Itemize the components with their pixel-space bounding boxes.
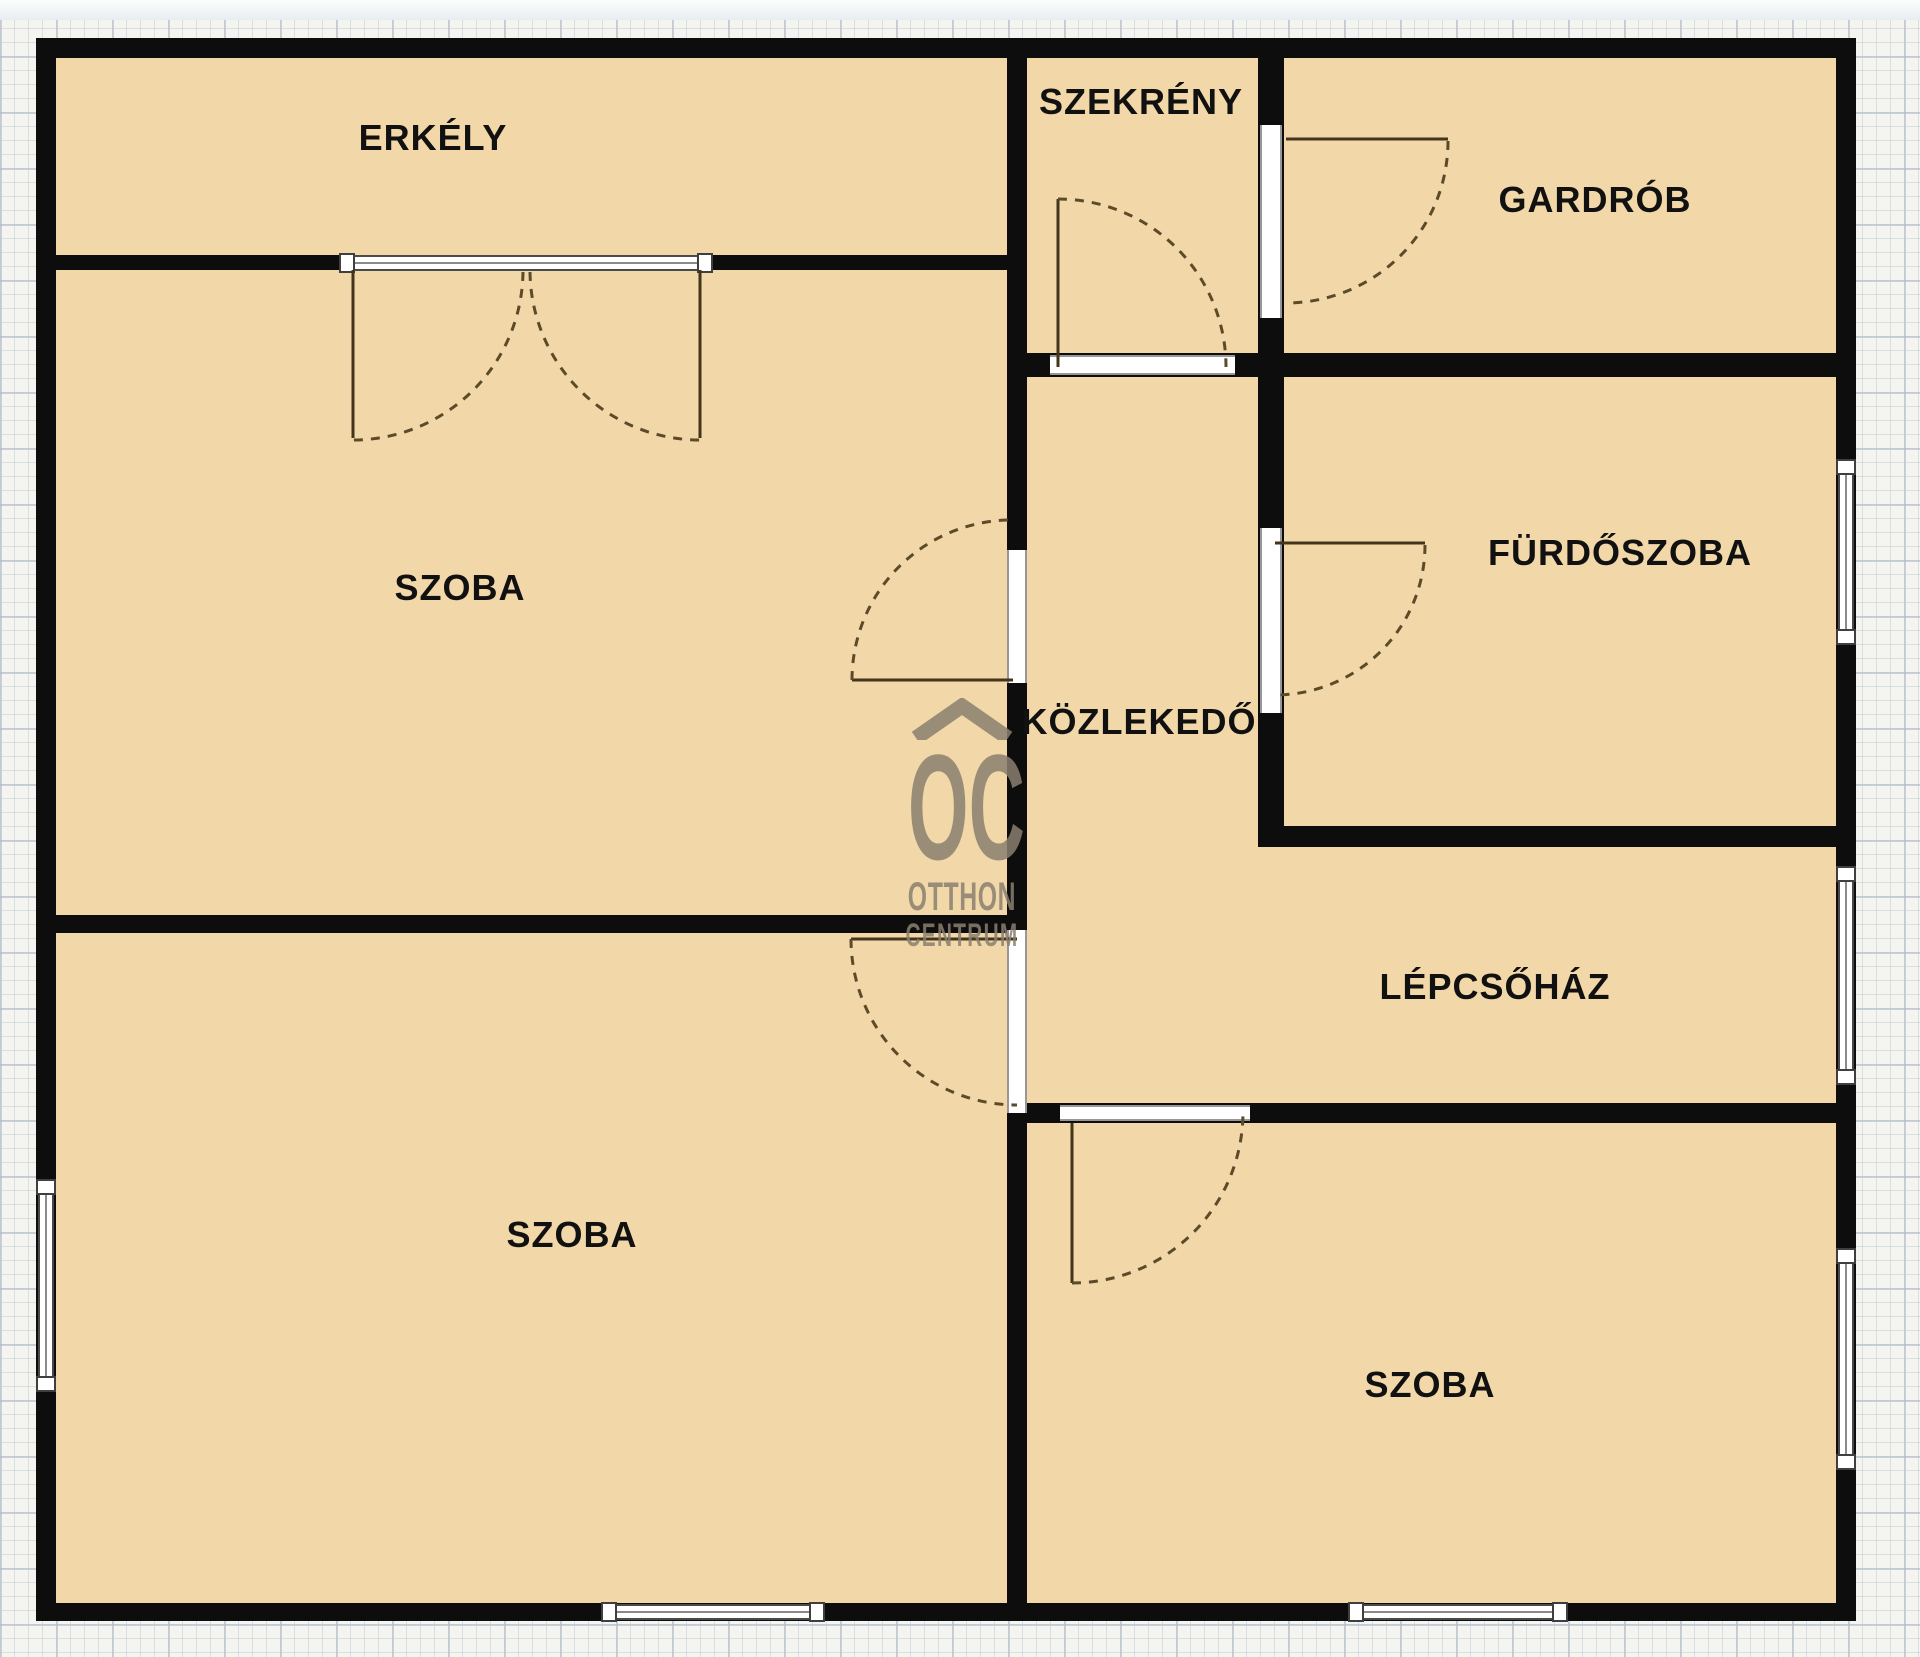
- door-swing-arc: [530, 272, 700, 440]
- door-swing-arc: [1275, 545, 1425, 695]
- room-label-gardrob: GARDRÓB: [1499, 179, 1692, 221]
- watermark-line1: OTTHON: [898, 877, 1027, 917]
- room-label-kozlekedo: KÖZLEKEDŐ: [1021, 701, 1256, 743]
- door-swing-arc: [1072, 1112, 1243, 1283]
- door-swing-arc: [851, 939, 1017, 1105]
- room-label-erkely: ERKÉLY: [359, 117, 508, 159]
- room-label-szekreny: SZEKRÉNY: [1039, 81, 1243, 123]
- room-label-lepcsohaz: LÉPCSŐHÁZ: [1379, 966, 1610, 1008]
- door-swing-arc: [1058, 199, 1226, 367]
- watermark-line2: CENTRUM: [894, 919, 1029, 951]
- floor-plan-canvas: OC OTTHON CENTRUM: [0, 0, 1920, 1657]
- room-label-furdoszoba: FÜRDŐSZOBA: [1488, 532, 1752, 574]
- watermark-initials: OC: [908, 751, 1016, 863]
- door-swing-arc: [852, 520, 1012, 680]
- room-label-szoba-top-left: SZOBA: [395, 567, 526, 609]
- door-swing-arc: [1286, 141, 1448, 303]
- door-swing-arc: [353, 272, 523, 440]
- room-label-szoba-bottom-left: SZOBA: [507, 1214, 638, 1256]
- room-label-szoba-bottom-right: SZOBA: [1365, 1364, 1496, 1406]
